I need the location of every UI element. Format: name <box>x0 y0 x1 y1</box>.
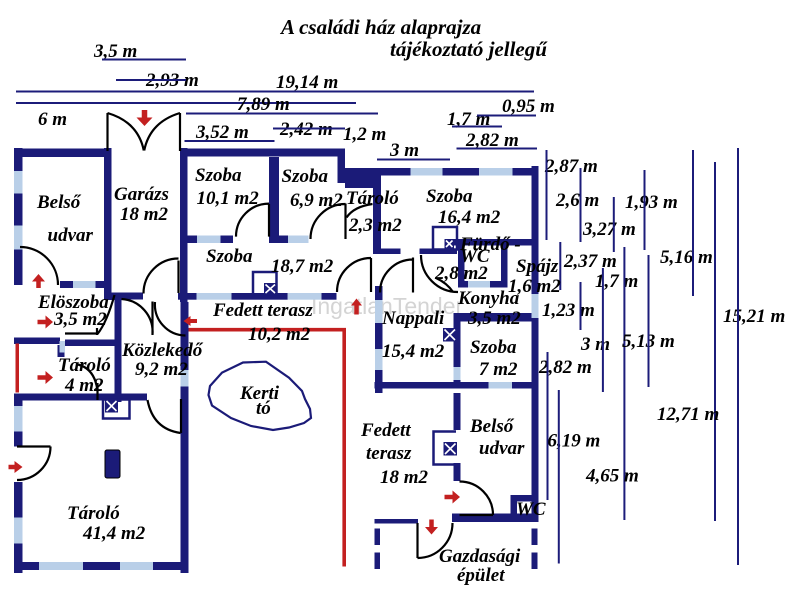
svg-text:tájékoztató jellegű: tájékoztató jellegű <box>390 37 548 61</box>
svg-text:15,21 m: 15,21 m <box>723 306 785 327</box>
svg-text:3 m: 3 m <box>389 140 419 161</box>
svg-text:Tároló: Tároló <box>58 355 111 376</box>
svg-text:9,2 m2: 9,2 m2 <box>135 359 188 380</box>
svg-text:18 m2: 18 m2 <box>380 467 429 488</box>
svg-text:4 m2: 4 m2 <box>64 375 104 396</box>
svg-text:1,23 m: 1,23 m <box>542 300 595 321</box>
svg-text:Belső: Belső <box>469 416 515 437</box>
svg-text:3,5 m2: 3,5 m2 <box>53 309 107 330</box>
svg-text:3,52 m: 3,52 m <box>195 122 249 143</box>
svg-text:5,16 m: 5,16 m <box>660 247 713 268</box>
svg-text:3 m: 3 m <box>580 334 610 355</box>
svg-text:udvar: udvar <box>479 438 525 459</box>
svg-text:Tároló: Tároló <box>346 188 399 209</box>
svg-text:Szoba: Szoba <box>206 246 253 267</box>
svg-text:10,1 m2: 10,1 m2 <box>197 188 260 209</box>
svg-text:udvar: udvar <box>48 225 94 246</box>
svg-text:épület: épület <box>457 565 505 586</box>
svg-text:Konyha: Konyha <box>457 288 520 309</box>
svg-text:6 m: 6 m <box>38 109 67 130</box>
svg-text:Garázs: Garázs <box>114 184 169 205</box>
svg-text:Szoba: Szoba <box>426 186 473 207</box>
svg-text:Szoba: Szoba <box>282 166 329 187</box>
svg-text:18 m2: 18 m2 <box>120 204 169 225</box>
svg-text:Tároló: Tároló <box>67 503 120 524</box>
svg-text:Belső: Belső <box>36 192 82 213</box>
svg-text:10,2 m2: 10,2 m2 <box>248 324 311 345</box>
svg-text:Közlekedő: Közlekedő <box>121 340 204 361</box>
svg-text:2,82 m: 2,82 m <box>538 357 592 378</box>
svg-text:41,4 m2: 41,4 m2 <box>82 523 146 544</box>
svg-text:Fedett terasz: Fedett terasz <box>212 300 313 321</box>
svg-text:Szoba: Szoba <box>195 165 242 186</box>
svg-text:12,71 m: 12,71 m <box>657 404 719 425</box>
svg-text:3,27 m: 3,27 m <box>582 219 636 240</box>
svg-text:Nappali: Nappali <box>381 308 445 329</box>
svg-text:15,4 m2: 15,4 m2 <box>382 341 445 362</box>
svg-text:WC: WC <box>516 499 546 520</box>
svg-text:18,7 m2: 18,7 m2 <box>271 256 334 277</box>
svg-text:0,95 m: 0,95 m <box>502 96 555 117</box>
svg-text:2,37 m: 2,37 m <box>563 251 617 272</box>
svg-text:Szoba: Szoba <box>470 337 517 358</box>
svg-text:tó: tó <box>256 398 271 419</box>
svg-text:1,2 m: 1,2 m <box>343 124 386 145</box>
svg-text:terasz: terasz <box>366 443 412 464</box>
svg-text:7 m2: 7 m2 <box>479 359 518 380</box>
svg-text:19,14 m: 19,14 m <box>276 72 338 93</box>
svg-text:Fedett: Fedett <box>360 420 411 441</box>
svg-text:Spájz: Spájz <box>516 256 559 277</box>
svg-text:2,3 m2: 2,3 m2 <box>348 215 402 236</box>
svg-text:4,65 m: 4,65 m <box>585 466 639 487</box>
svg-text:6,19 m: 6,19 m <box>548 431 601 452</box>
svg-text:1,7 m: 1,7 m <box>595 271 638 292</box>
svg-text:16,4 m2: 16,4 m2 <box>438 207 501 228</box>
svg-text:1,93 m: 1,93 m <box>625 192 678 213</box>
svg-text:2,8 m2: 2,8 m2 <box>434 263 488 284</box>
svg-text:7,89 m: 7,89 m <box>237 94 290 115</box>
svg-text:2,87 m: 2,87 m <box>544 156 598 177</box>
svg-text:A családi ház alaprajza: A családi ház alaprajza <box>279 15 481 39</box>
svg-text:2,6 m: 2,6 m <box>555 190 599 211</box>
svg-text:Gazdasági: Gazdasági <box>439 546 521 567</box>
svg-text:3,5 m2: 3,5 m2 <box>467 308 521 329</box>
svg-text:6,9 m2: 6,9 m2 <box>290 190 343 211</box>
